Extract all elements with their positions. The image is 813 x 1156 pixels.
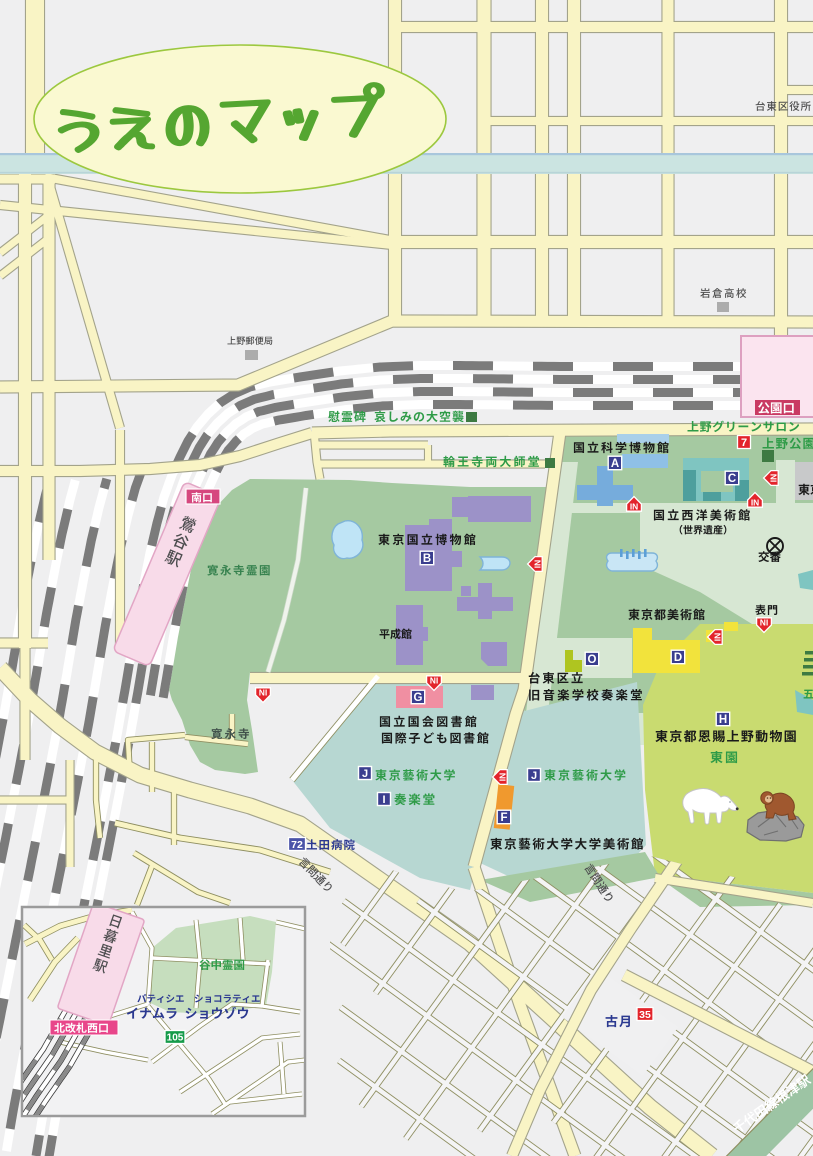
svg-text:7: 7	[741, 437, 747, 449]
svg-text:IN: IN	[760, 617, 768, 627]
svg-text:IN: IN	[751, 498, 759, 508]
svg-text:D: D	[674, 652, 682, 664]
svg-text:C: C	[728, 473, 736, 485]
svg-text:35: 35	[639, 1009, 651, 1021]
svg-text:H: H	[719, 714, 727, 726]
svg-text:72: 72	[291, 839, 303, 851]
svg-text:105: 105	[167, 1033, 184, 1044]
svg-text:IN: IN	[533, 560, 543, 568]
svg-text:IN: IN	[430, 675, 438, 685]
svg-text:IN: IN	[713, 633, 723, 641]
svg-text:IN: IN	[769, 474, 779, 482]
svg-text:J: J	[362, 768, 368, 780]
svg-text:G: G	[414, 692, 423, 704]
svg-text:IN: IN	[498, 773, 508, 781]
svg-text:B: B	[423, 553, 431, 565]
svg-text:O: O	[588, 654, 597, 666]
svg-text:J: J	[531, 770, 537, 782]
svg-text:IN: IN	[630, 502, 638, 512]
svg-text:F: F	[500, 812, 507, 824]
svg-text:IN: IN	[259, 687, 267, 697]
svg-text:I: I	[382, 794, 385, 806]
svg-text:A: A	[611, 458, 619, 470]
